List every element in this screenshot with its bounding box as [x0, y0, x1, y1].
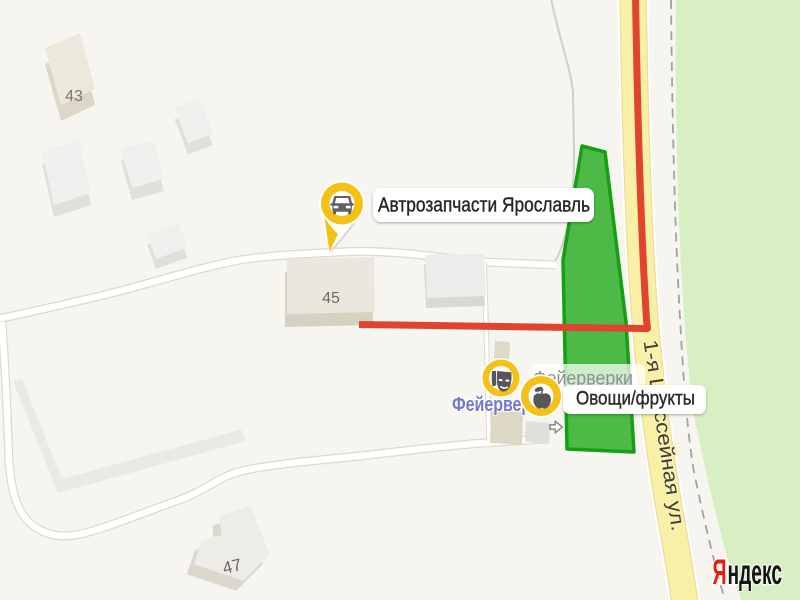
svg-text:Я: Я [713, 553, 727, 592]
svg-text:45: 45 [322, 290, 340, 307]
svg-text:43: 43 [65, 88, 83, 105]
svg-text:ндекс: ндекс [728, 553, 783, 592]
svg-text:Автрозапчасти Ярославль: Автрозапчасти Ярославль [378, 195, 590, 217]
svg-text:Овощи/фрукты: Овощи/фрукты [576, 389, 695, 410]
